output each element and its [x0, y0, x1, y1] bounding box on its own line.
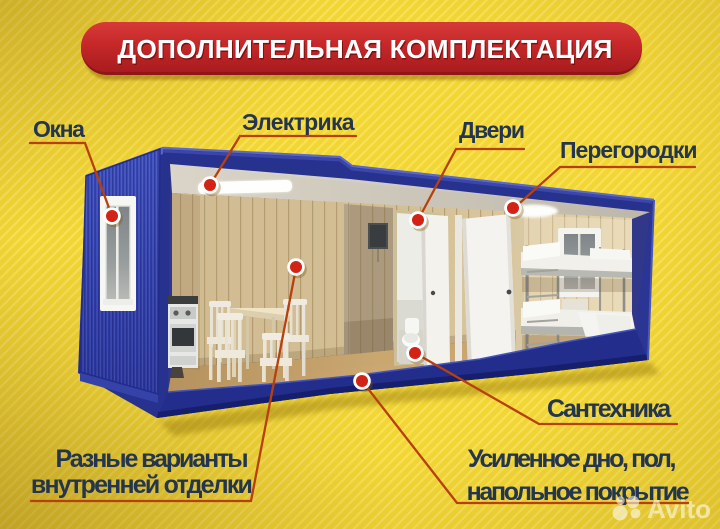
svg-text:Окна: Окна	[33, 116, 85, 142]
svg-text:Электрика: Электрика	[242, 109, 355, 135]
svg-text:Avito: Avito	[647, 494, 711, 524]
svg-text:внутренней отделки: внутренней отделки	[31, 471, 252, 499]
svg-text:Разные варианты: Разные варианты	[56, 445, 248, 473]
svg-text:Перегородки: Перегородки	[560, 137, 697, 163]
svg-text:Сантехника: Сантехника	[547, 395, 672, 423]
svg-text:Двери: Двери	[459, 117, 524, 143]
svg-text:ДОПОЛНИТЕЛЬНАЯ КОМПЛЕКТАЦИЯ: ДОПОЛНИТЕЛЬНАЯ КОМПЛЕКТАЦИЯ	[117, 34, 612, 64]
svg-text:Усиленное дно, пол,: Усиленное дно, пол,	[468, 445, 676, 473]
